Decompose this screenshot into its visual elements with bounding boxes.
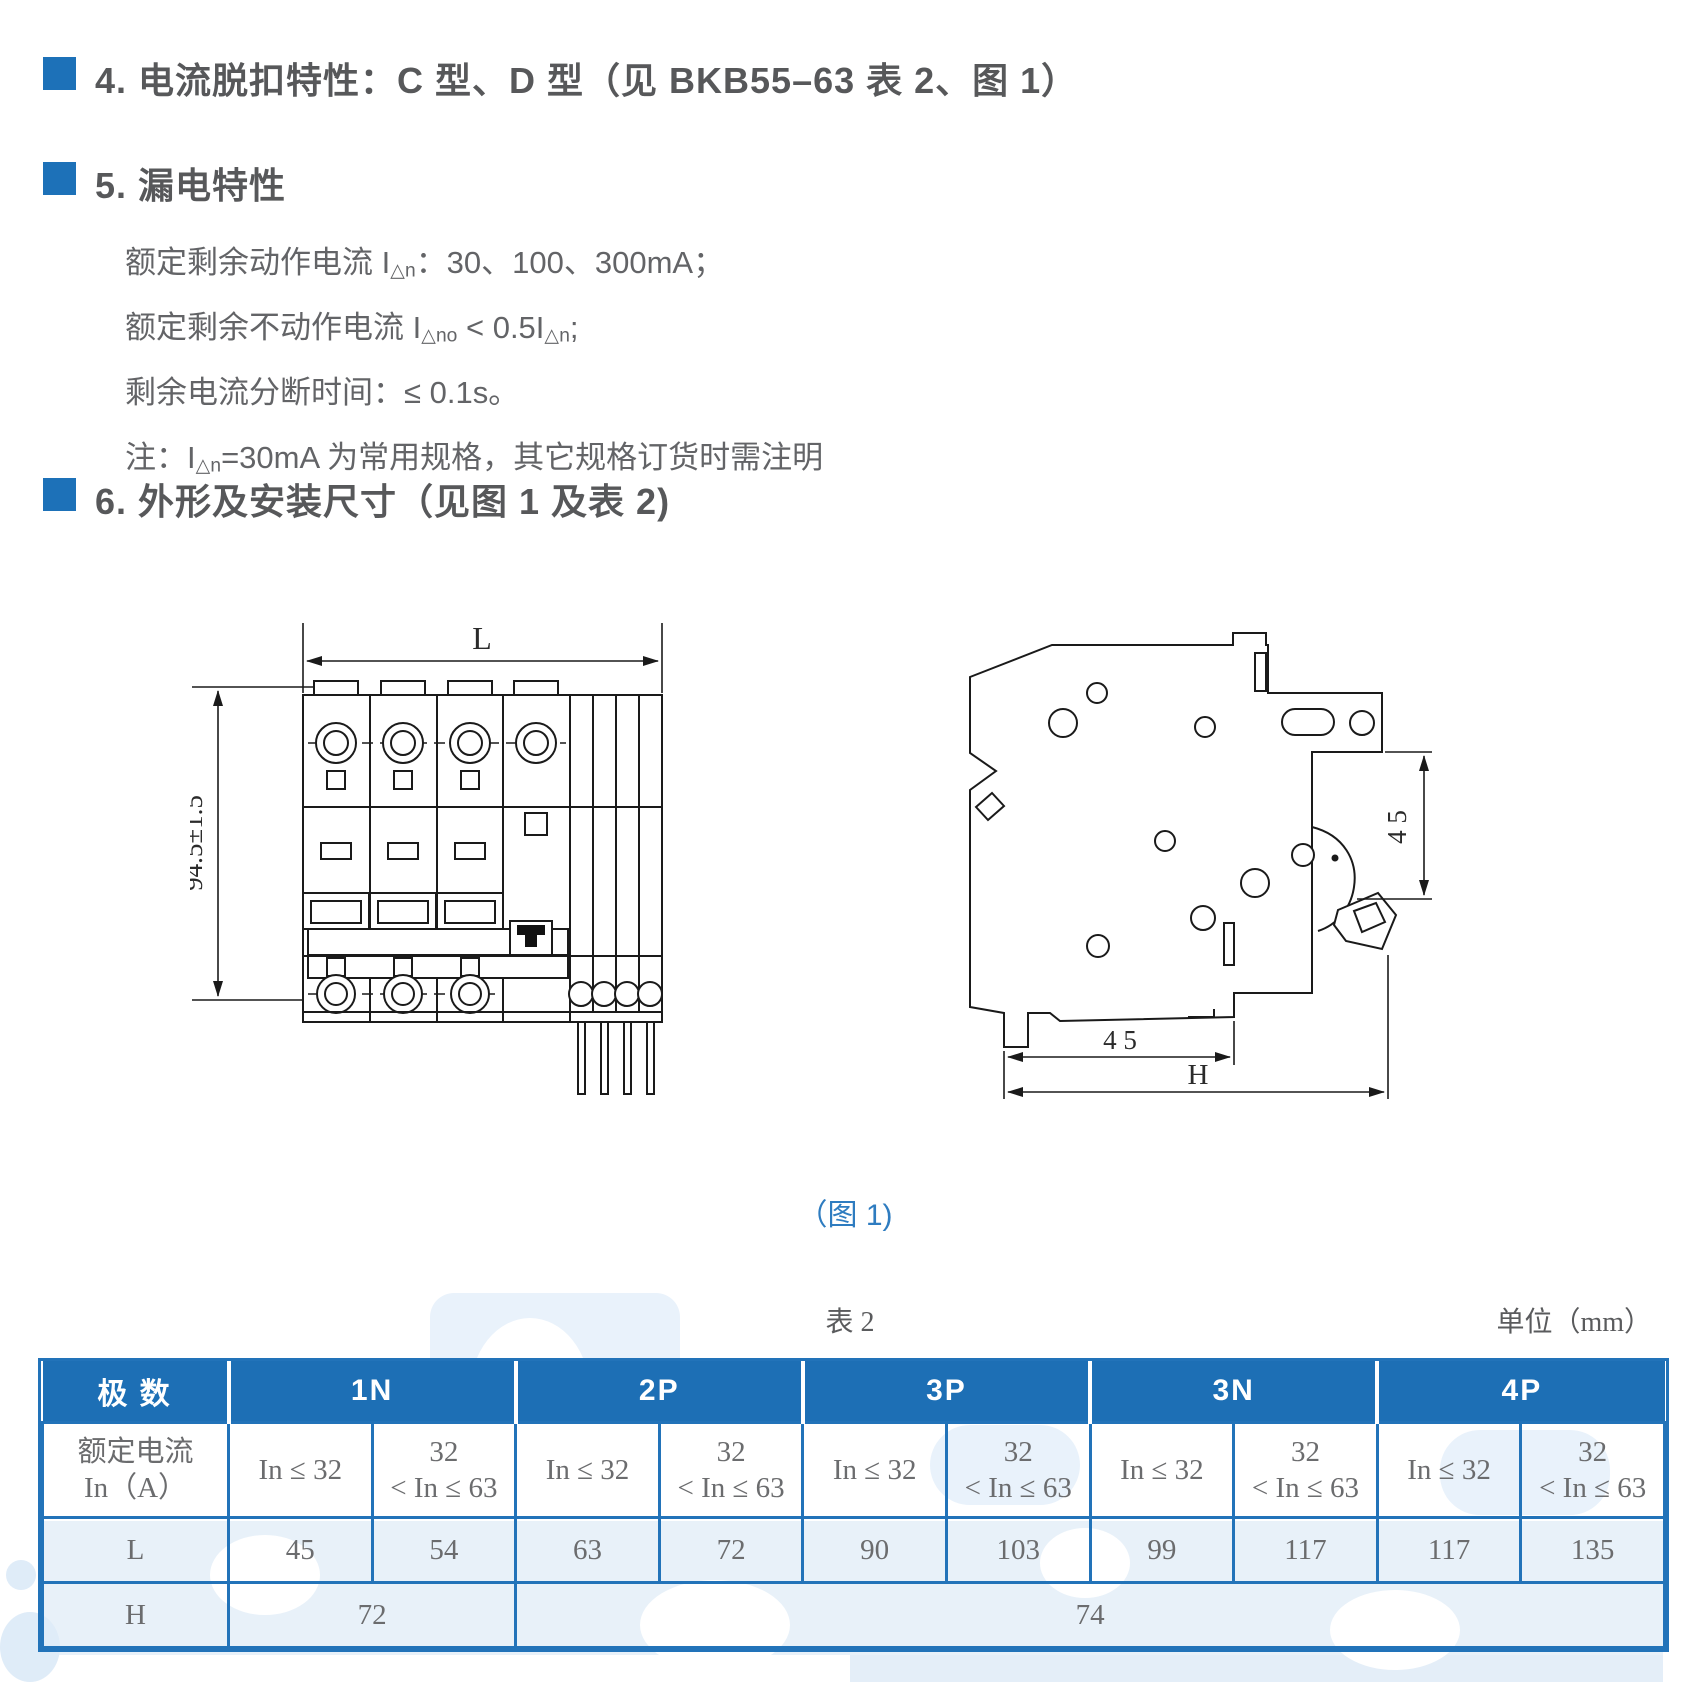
- section5-bullet-square: [43, 162, 76, 195]
- cell-1N-high: 32< In ≤ 63: [372, 1423, 516, 1518]
- cell-3N-low: In ≤ 32: [1090, 1423, 1234, 1518]
- table2: 极 数 1N 2P 3P 3N 4P 额定电流In（A） In ≤ 32 32<…: [38, 1358, 1669, 1652]
- side-view-drawing: 4 5 4 5 H: [930, 575, 1470, 1105]
- L-value: 99: [1090, 1518, 1234, 1583]
- side-depth-label: 4 5: [1382, 810, 1412, 844]
- leakage-line-2: 额定剩余不动作电流 I△no < 0.5I△n;: [125, 302, 579, 347]
- table2-L-row: L 45 54 63 72 90 103 99 117 117 135: [43, 1518, 1665, 1583]
- H-value-rest: 74: [516, 1583, 1665, 1648]
- cell-1N-low: In ≤ 32: [229, 1423, 373, 1518]
- cell-3P-high: 32< In ≤ 63: [946, 1423, 1090, 1518]
- H-row-label: H: [43, 1583, 229, 1648]
- leakage-line-1: 额定剩余动作电流 I△n：30、100、300mA；: [125, 237, 724, 282]
- cell-4P-low: In ≤ 32: [1377, 1423, 1521, 1518]
- section4-title: 4. 电流脱扣特性：C 型、D 型（见 BKB55–63 表 2、图 1）: [95, 52, 1078, 104]
- side-overall-label: H: [1188, 1059, 1209, 1091]
- table2-current-row: 额定电流In（A） In ≤ 32 32< In ≤ 63 In ≤ 32 32…: [43, 1423, 1665, 1518]
- table2-group-4P: 4P: [1377, 1361, 1664, 1423]
- table2-corner-cell: 极 数: [43, 1361, 229, 1423]
- figure1-caption: （图 1): [695, 1190, 995, 1234]
- H-value-1N: 72: [229, 1583, 516, 1648]
- datasheet-page: 4. 电流脱扣特性：C 型、D 型（见 BKB55–63 表 2、图 1） 5.…: [0, 0, 1700, 1682]
- L-value: 45: [229, 1518, 373, 1583]
- table2-group-1N: 1N: [229, 1361, 516, 1423]
- table2-header-row: 极 数 1N 2P 3P 3N 4P: [43, 1361, 1665, 1423]
- cell-2P-high: 32< In ≤ 63: [659, 1423, 803, 1518]
- table2-unit: 单位（mm）: [1496, 1300, 1652, 1340]
- table2-caption: 表 2: [700, 1300, 1000, 1340]
- side-bottom-width-label: 4 5: [1103, 1025, 1137, 1055]
- section4-bullet-square: [43, 57, 76, 90]
- L-value: 135: [1521, 1518, 1665, 1583]
- L-value: 103: [946, 1518, 1090, 1583]
- leakage-line-3: 剩余电流分断时间：≤ 0.1s。: [125, 367, 519, 412]
- section6-title: 6. 外形及安装尺寸（见图 1 及表 2): [95, 473, 670, 525]
- current-row-label: 额定电流In（A）: [43, 1423, 229, 1518]
- L-value: 90: [803, 1518, 947, 1583]
- L-row-label: L: [43, 1518, 229, 1583]
- L-value: 117: [1377, 1518, 1521, 1583]
- L-value: 117: [1234, 1518, 1378, 1583]
- table2-group-3P: 3P: [803, 1361, 1090, 1423]
- table2-group-3N: 3N: [1090, 1361, 1377, 1423]
- cell-2P-low: In ≤ 32: [516, 1423, 660, 1518]
- L-value: 63: [516, 1518, 660, 1583]
- table2-H-row: H 72 74: [43, 1583, 1665, 1648]
- cell-3N-high: 32< In ≤ 63: [1234, 1423, 1378, 1518]
- section5-title: 5. 漏电特性: [95, 157, 286, 209]
- cell-4P-high: 32< In ≤ 63: [1521, 1423, 1665, 1518]
- table2-group-2P: 2P: [516, 1361, 803, 1423]
- L-value: 54: [372, 1518, 516, 1583]
- front-view-drawing: L 94.5±1.5: [190, 575, 710, 1105]
- front-width-label: L: [472, 620, 492, 656]
- cell-3P-low: In ≤ 32: [803, 1423, 947, 1518]
- section6-bullet-square: [43, 478, 76, 511]
- L-value: 72: [659, 1518, 803, 1583]
- front-height-label: 94.5±1.5: [190, 795, 208, 891]
- leakage-line-4: 注：I△n=30mA 为常用规格，其它规格订货时需注明: [125, 432, 823, 477]
